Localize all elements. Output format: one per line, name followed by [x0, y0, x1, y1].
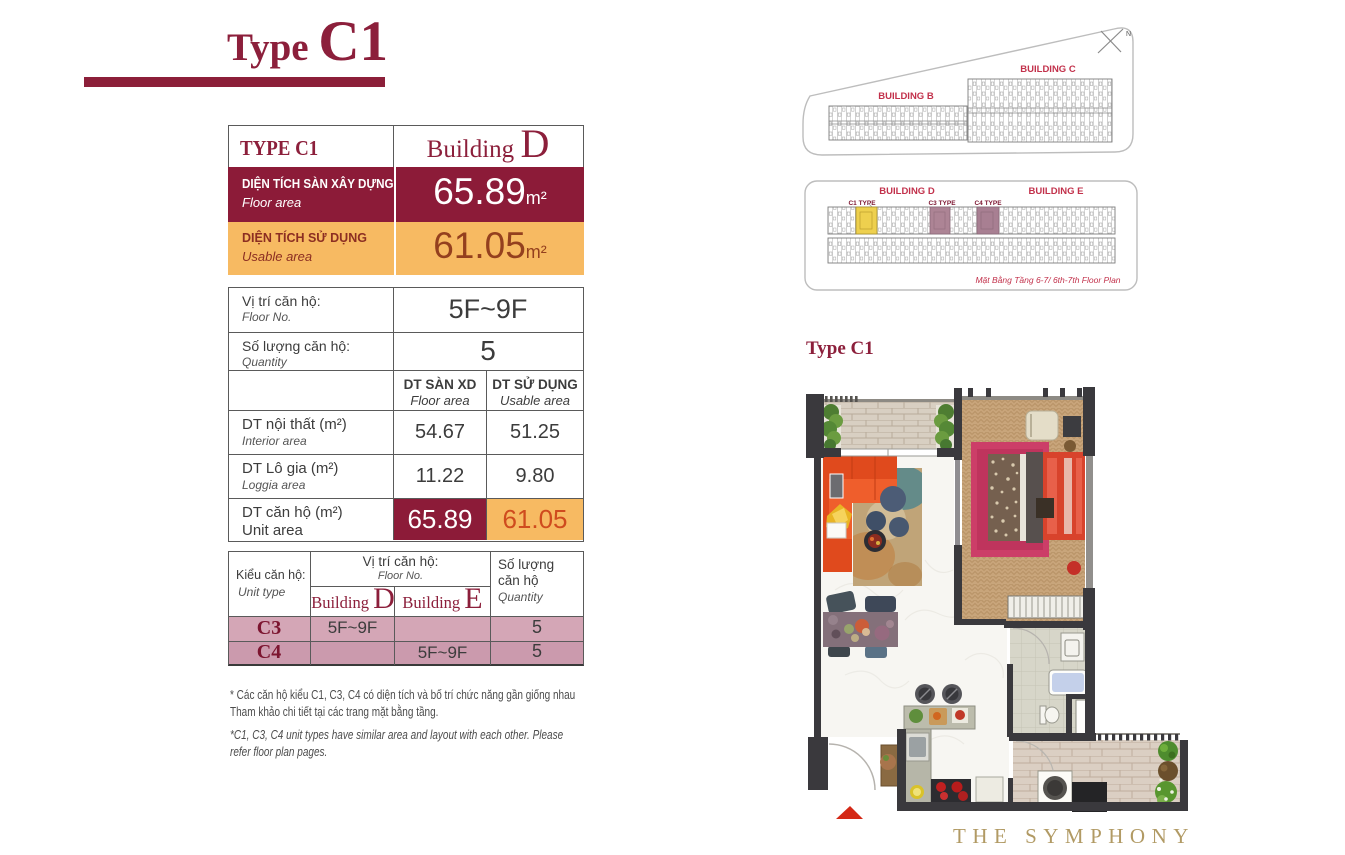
svg-text:C3 TYPE: C3 TYPE — [928, 200, 956, 207]
svg-text:BUILDING B: BUILDING B — [878, 91, 934, 102]
svg-text:C4 TYPE: C4 TYPE — [974, 200, 1002, 207]
svg-text:BUILDING C: BUILDING C — [1020, 64, 1076, 75]
svg-text:C1 TYPE: C1 TYPE — [848, 200, 876, 207]
svg-text:BUILDING E: BUILDING E — [1029, 186, 1084, 197]
svg-text:N: N — [1126, 31, 1131, 38]
svg-text:BUILDING D: BUILDING D — [879, 186, 935, 197]
svg-text:Mặt Bằng Tầng 6-7/ 6th-7th Flo: Mặt Bằng Tầng 6-7/ 6th-7th Floor Plan — [975, 275, 1120, 285]
